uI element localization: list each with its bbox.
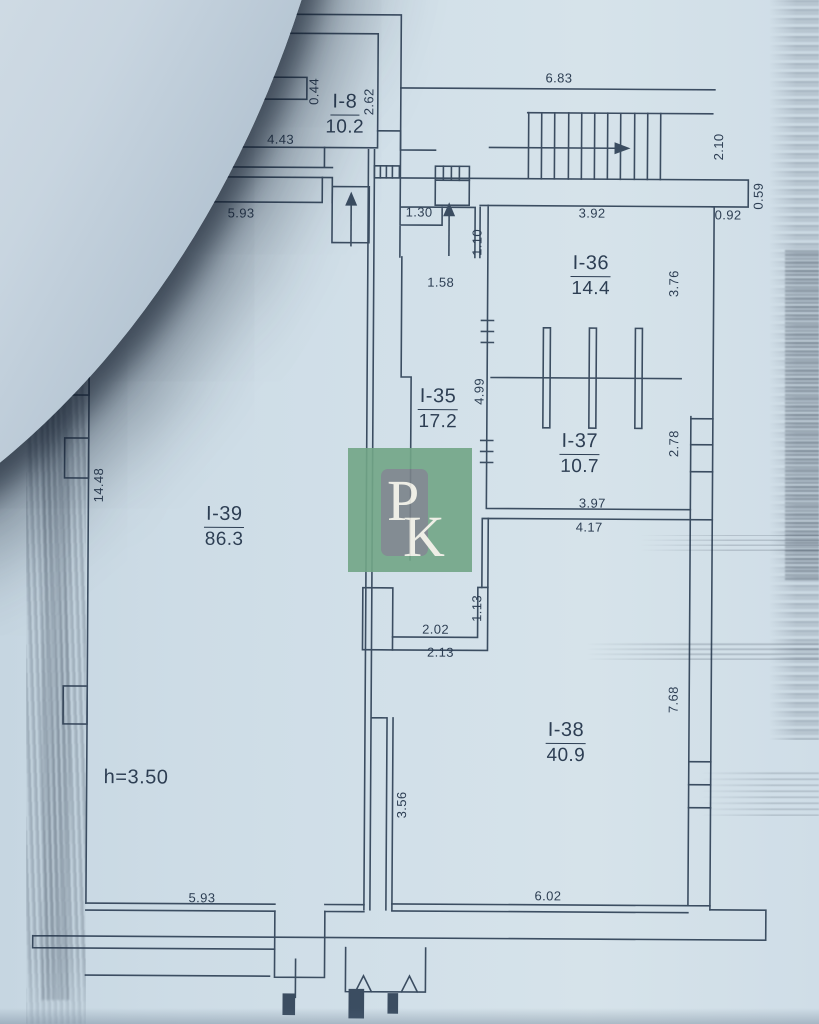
entrance-steps: [345, 948, 425, 992]
floorplan-photo: h=3.50 6.952.880.442.624.436.832.100.595…: [0, 0, 819, 1024]
corridor-and-stairs: [400, 88, 749, 207]
scan-streak: [640, 535, 819, 551]
partition-with-pillar: [362, 587, 487, 651]
paper-bottom-shadow: [0, 1008, 819, 1024]
watermark-letter-k: K: [403, 514, 445, 560]
stair-arrow-head: [615, 142, 631, 154]
stair-direction-arrow: [490, 147, 615, 148]
window-ticks: [689, 419, 713, 808]
photocopy-smudge-right-dark: [785, 250, 819, 580]
stair-treads: [528, 113, 660, 180]
pillar: [362, 588, 392, 650]
scan-streak: [700, 770, 819, 816]
scan-streak: [585, 640, 819, 660]
bottom-walls: [32, 902, 766, 1020]
rooms-i36-i37: [478, 205, 714, 588]
vestibule: [274, 911, 325, 997]
watermark: P K: [348, 448, 472, 572]
